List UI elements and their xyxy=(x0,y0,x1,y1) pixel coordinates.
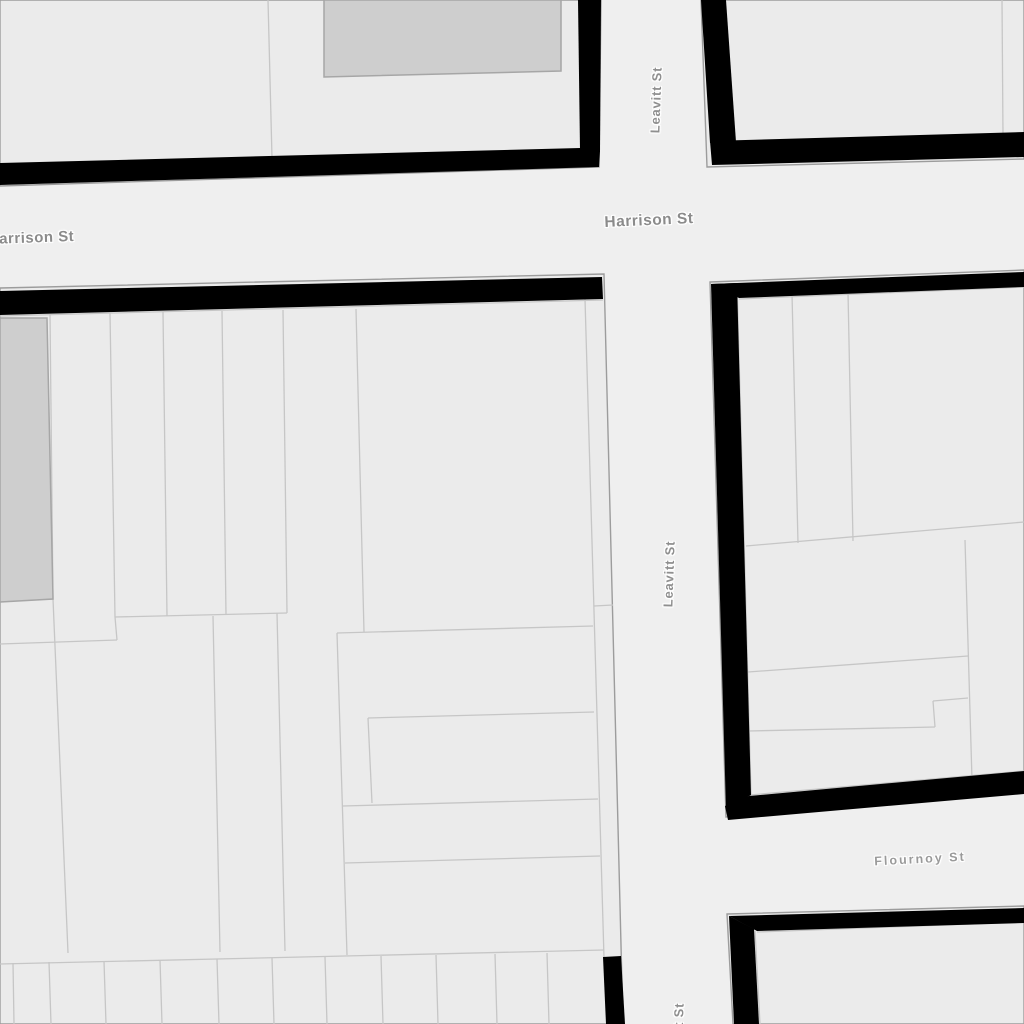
map-layer xyxy=(0,0,1024,1024)
building xyxy=(0,318,53,602)
block-lower-left xyxy=(0,274,623,1024)
block-right-middle xyxy=(710,270,1024,817)
block-edge-black xyxy=(578,0,601,152)
map-canvas[interactable]: Harrison St Harrison St Leavitt St Leavi… xyxy=(0,0,1024,1024)
building xyxy=(324,0,561,77)
